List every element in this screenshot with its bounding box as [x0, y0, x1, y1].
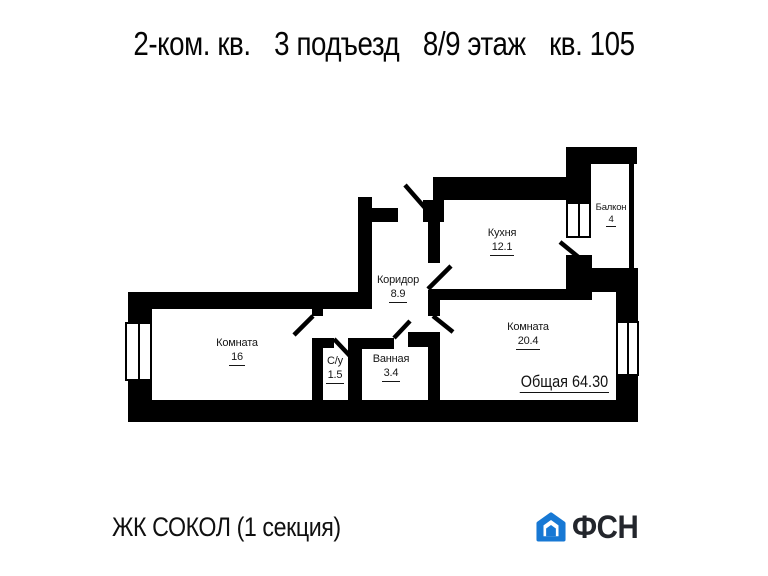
room-name: Ванная	[373, 353, 409, 367]
floor-plan: Комната 16 С/у 1.5 Ванная 3.4 Коридор 8.…	[0, 0, 768, 576]
entrance-door-swing	[405, 185, 426, 209]
bathroom-door-swing	[394, 321, 410, 338]
room-area: 4	[606, 214, 615, 227]
room-area: 8.9	[389, 288, 408, 303]
balcony-door-swing	[560, 242, 582, 260]
room2-door-swing	[433, 316, 453, 332]
developer-logo: ФСН	[536, 509, 644, 545]
wc-door-swing	[334, 339, 350, 356]
room-name: Комната	[507, 321, 549, 335]
room-name: Комната	[216, 337, 258, 351]
room-name: Кухня	[488, 227, 516, 241]
room-name: Балкон	[596, 202, 627, 214]
room-label-kitchen: Кухня 12.1	[452, 227, 552, 256]
room1-door-swing	[294, 316, 313, 335]
room-area: 3.4	[382, 367, 401, 382]
total-area-label: Общая 64.30	[514, 372, 609, 392]
room-area: 20.4	[516, 335, 541, 350]
room-label-bathroom: Ванная 3.4	[351, 353, 431, 382]
room-name: С/у	[327, 355, 343, 369]
room-label-living1: Комната 16	[177, 337, 297, 366]
room-area: 16	[229, 351, 245, 366]
room-label-balcony: Балкон 4	[581, 202, 641, 227]
room-label-corridor: Коридор 8.9	[348, 274, 448, 303]
logo-text: ФСН	[572, 509, 638, 546]
room-name: Коридор	[377, 274, 419, 288]
room-area: 1.5	[326, 369, 345, 384]
room-area: 12.1	[490, 241, 515, 256]
complex-name: ЖК СОКОЛ (1 секция)	[112, 512, 341, 543]
room-label-living2: Комната 20.4	[468, 321, 588, 350]
floor-plan-page: 2-ком. кв. 3 подъезд 8/9 этаж кв. 105	[0, 0, 768, 576]
house-icon	[536, 512, 566, 542]
